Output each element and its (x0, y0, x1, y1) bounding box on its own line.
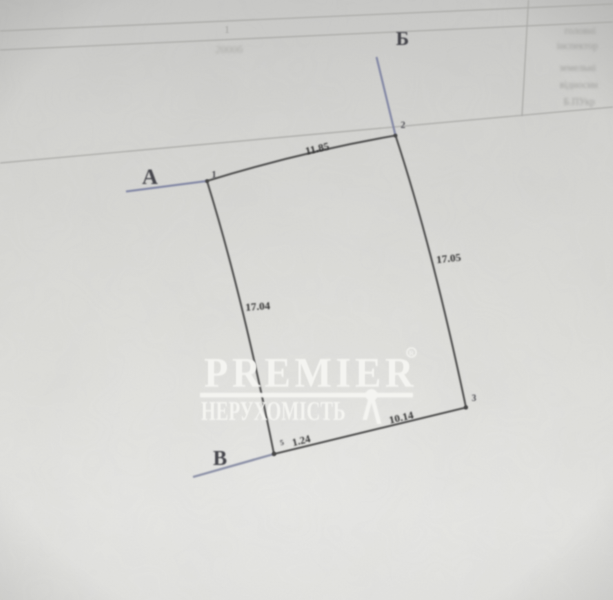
svg-text:Б.ПУкр: Б.ПУкр (563, 97, 595, 108)
svg-text:2000б: 2000б (215, 44, 243, 56)
svg-text:А: А (142, 164, 158, 189)
svg-text:НЕРУХОМІСТЬ: НЕРУХОМІСТЬ (201, 397, 346, 427)
svg-text:17.04: 17.04 (245, 300, 271, 314)
svg-text:земельні: земельні (559, 63, 596, 74)
svg-text:головні: головні (564, 26, 596, 37)
svg-text:3: 3 (472, 393, 477, 403)
svg-text:1: 1 (212, 170, 217, 181)
svg-text:PREMIER: PREMIER (204, 350, 417, 396)
svg-text:1: 1 (224, 24, 230, 36)
svg-text:відносин: відносин (560, 80, 599, 91)
svg-text:2: 2 (401, 121, 406, 131)
svg-text:В: В (213, 446, 227, 470)
svg-text:Б: Б (396, 28, 409, 50)
svg-text:R: R (409, 349, 415, 358)
svg-text:інспектор: інспектор (557, 41, 598, 52)
